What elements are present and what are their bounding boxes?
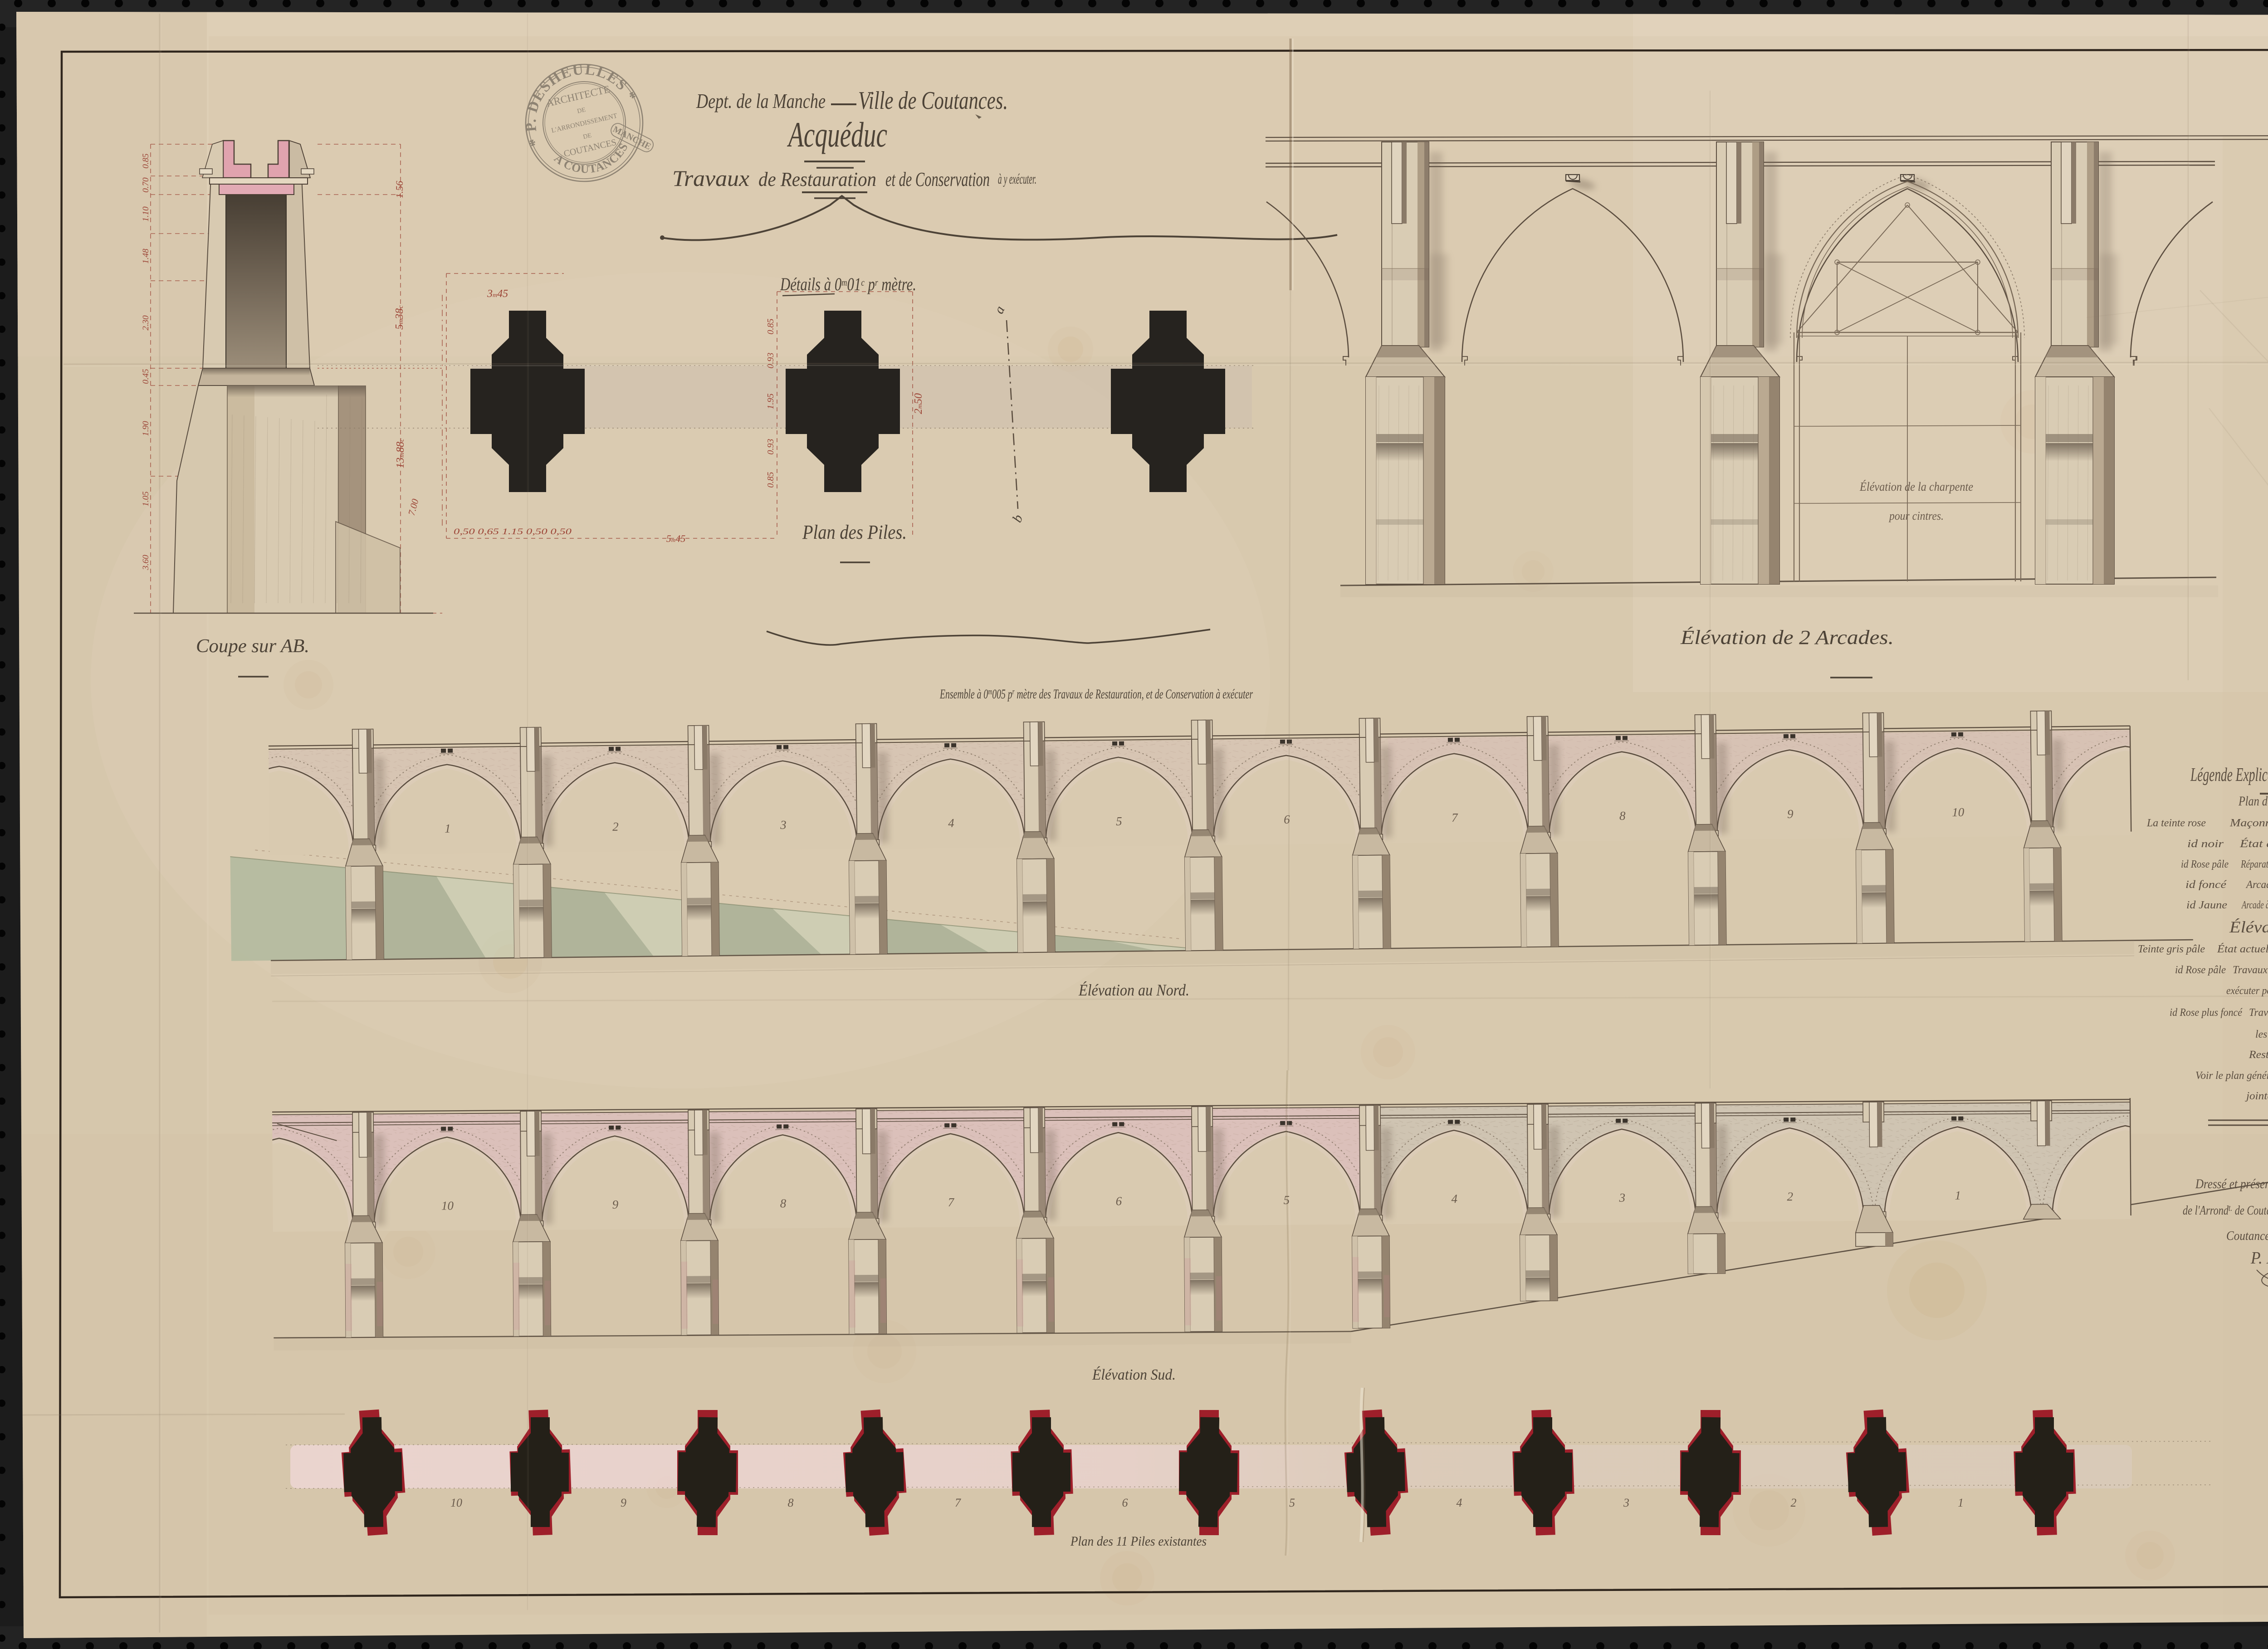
svg-text:id Rose pâle: id Rose pâle [2181,859,2229,870]
svg-text:5m45: 5m45 [666,533,685,544]
svg-text:Teinte gris pâle: Teinte gris pâle [2138,943,2205,955]
svg-text:6: 6 [1116,1194,1122,1208]
svg-text:0.93: 0.93 [766,353,776,369]
svg-text:1.90: 1.90 [141,421,151,436]
svg-text:Maçonnerie à exécuter.: Maçonnerie à exécuter. [2229,817,2268,829]
svg-text:Restauration: Restauration [2248,1049,2268,1061]
svg-text:1.56: 1.56 [394,181,405,199]
svg-text:Élévation au Nord.: Élévation au Nord. [1078,981,1189,999]
svg-text:2.30: 2.30 [141,315,151,331]
svg-text:5: 5 [1289,1496,1295,1509]
svg-text:1.05: 1.05 [141,491,151,506]
svg-text:2: 2 [612,820,619,834]
svg-text:Travaux de Maçonnerie à: Travaux de Maçonnerie à [2233,964,2268,976]
svg-text:Acquéduc: Acquéduc [787,115,887,154]
svg-text:Dressé et présenté par l'Archi: Dressé et présenté par l'Architecte [2195,1176,2268,1191]
svg-text:3m45: 3m45 [487,288,508,300]
svg-text:0.85: 0.85 [766,472,776,488]
svg-text:10: 10 [1952,805,1965,819]
svg-text:id noir: id noir [2187,838,2224,850]
svg-text:Travaux: Travaux [672,166,749,191]
svg-text:10: 10 [450,1496,462,1509]
svg-text:3: 3 [1619,1191,1626,1205]
svg-text:7: 7 [955,1496,961,1509]
svg-text:10: 10 [441,1199,454,1212]
svg-text:0,50 0,65 1.15 0,50 0,50: 0,50 0,65 1.15 0,50 0,50 [454,527,572,537]
svg-text:1: 1 [1955,1189,1961,1202]
svg-text:3: 3 [1623,1496,1629,1509]
svg-text:Arcades à Reconstruire.: Arcades à Reconstruire. [2245,879,2268,891]
svg-text:État actuel.: État actuel. [2239,838,2268,850]
svg-text:Légende Explicative des teinte: Légende Explicative des teintes. [2190,765,2268,785]
svg-text:id Rose pâle: id Rose pâle [2175,964,2226,976]
svg-text:8: 8 [788,1496,794,1509]
svg-text:4: 4 [1457,1496,1462,1509]
svg-text:9: 9 [621,1496,626,1509]
svg-text:Plan des piles: Plan des piles [2238,794,2268,809]
svg-text:jointe au dossier.: jointe au dossier. [2245,1090,2268,1102]
svg-text:Élévation de la charpente: Élévation de la charpente [1859,480,1973,493]
svg-text:5: 5 [1116,815,1122,828]
svg-text:1: 1 [1958,1496,1964,1509]
svg-text:Travaux à exécuter sur: Travaux à exécuter sur [2249,1007,2268,1019]
svg-text:0.70: 0.70 [141,177,151,193]
svg-text:0.45: 0.45 [141,369,151,384]
svg-text:0.85: 0.85 [766,319,776,335]
svg-text:3.60: 3.60 [141,555,151,571]
svg-text:2: 2 [1787,1190,1793,1203]
svg-text:Ensemble à 0m005 pr mètre des: Ensemble à 0m005 pr mètre des Travaux de… [939,687,1253,702]
svg-text:4: 4 [948,816,954,830]
svg-text:Plan des Piles.: Plan des Piles. [802,521,907,543]
svg-text:Dept. de la Manche: Dept. de la Manche [696,89,826,112]
svg-text:Élévations: Élévations [2229,918,2268,936]
svg-text:Plan des 11 Piles existantes: Plan des 11 Piles existantes [1070,1534,1207,1549]
svg-text:5m38c: 5m38c [394,305,406,330]
svg-text:Réparation aux voutes actuelle: Réparation aux voutes actuelles [2240,859,2268,870]
svg-text:les piles existantes.: les piles existantes. [2255,1029,2268,1040]
svg-text:7: 7 [1452,811,1458,824]
svg-text:Arcade à démolir et à reconstr: Arcade à démolir et à reconstruire. [2241,899,2268,911]
svg-text:9: 9 [612,1198,619,1211]
svg-text:à y exécuter.: à y exécuter. [998,171,1036,187]
svg-text:9: 9 [1787,807,1794,821]
svg-text:La teinte rose: La teinte rose [2146,817,2206,829]
svg-text:exécuter pour la conservation.: exécuter pour la conservation. [2226,985,2268,997]
svg-text:1.95: 1.95 [766,394,776,410]
svg-text:6: 6 [1122,1496,1128,1509]
svg-text:1.48: 1.48 [141,249,151,264]
svg-text:Ville de Coutances.: Ville de Coutances. [858,87,1008,115]
svg-text:et de Conservation: et de Conservation [885,168,990,190]
svg-text:id Rose plus foncé: id Rose plus foncé [2170,1007,2243,1019]
svg-text:8: 8 [1619,809,1626,823]
svg-text:État actuel de ce qui existe: État actuel de ce qui existe [2217,943,2268,955]
svg-text:2m50: 2m50 [913,393,924,414]
svg-text:7: 7 [948,1195,955,1209]
svg-text:Coupe sur AB.: Coupe sur AB. [196,636,309,657]
svg-text:de l'Arrondt. de Coutances Sou: de l'Arrondt. de Coutances Soussigné [2183,1203,2268,1218]
svg-text:Voir le plan général de la Bro: Voir le plan général de la Brochure [2195,1070,2268,1082]
svg-text:4: 4 [1452,1192,1458,1205]
svg-text:de Restauration: de Restauration [758,168,876,190]
svg-text:id foncé: id foncé [2185,879,2227,891]
svg-text:P. Desheulles: P. Desheulles [2250,1249,2268,1268]
svg-text:Élévation de 2 Arcades.: Élévation de 2 Arcades. [1680,626,1894,649]
svg-text:0.93: 0.93 [766,439,776,455]
svg-text:Élévation Sud.: Élévation Sud. [1092,1366,1176,1383]
svg-text:1.10: 1.10 [141,206,151,222]
svg-text:Coutances le 18 Août 1868: Coutances le 18 Août 1868 [2226,1229,2268,1243]
svg-text:2: 2 [1791,1496,1797,1509]
svg-text:3: 3 [780,818,787,832]
svg-text:id Jaune: id Jaune [2186,899,2227,911]
svg-text:0.85: 0.85 [141,153,151,168]
svg-text:8: 8 [780,1196,787,1210]
svg-text:pour cintres.: pour cintres. [1888,509,1944,522]
svg-text:1: 1 [445,822,451,835]
